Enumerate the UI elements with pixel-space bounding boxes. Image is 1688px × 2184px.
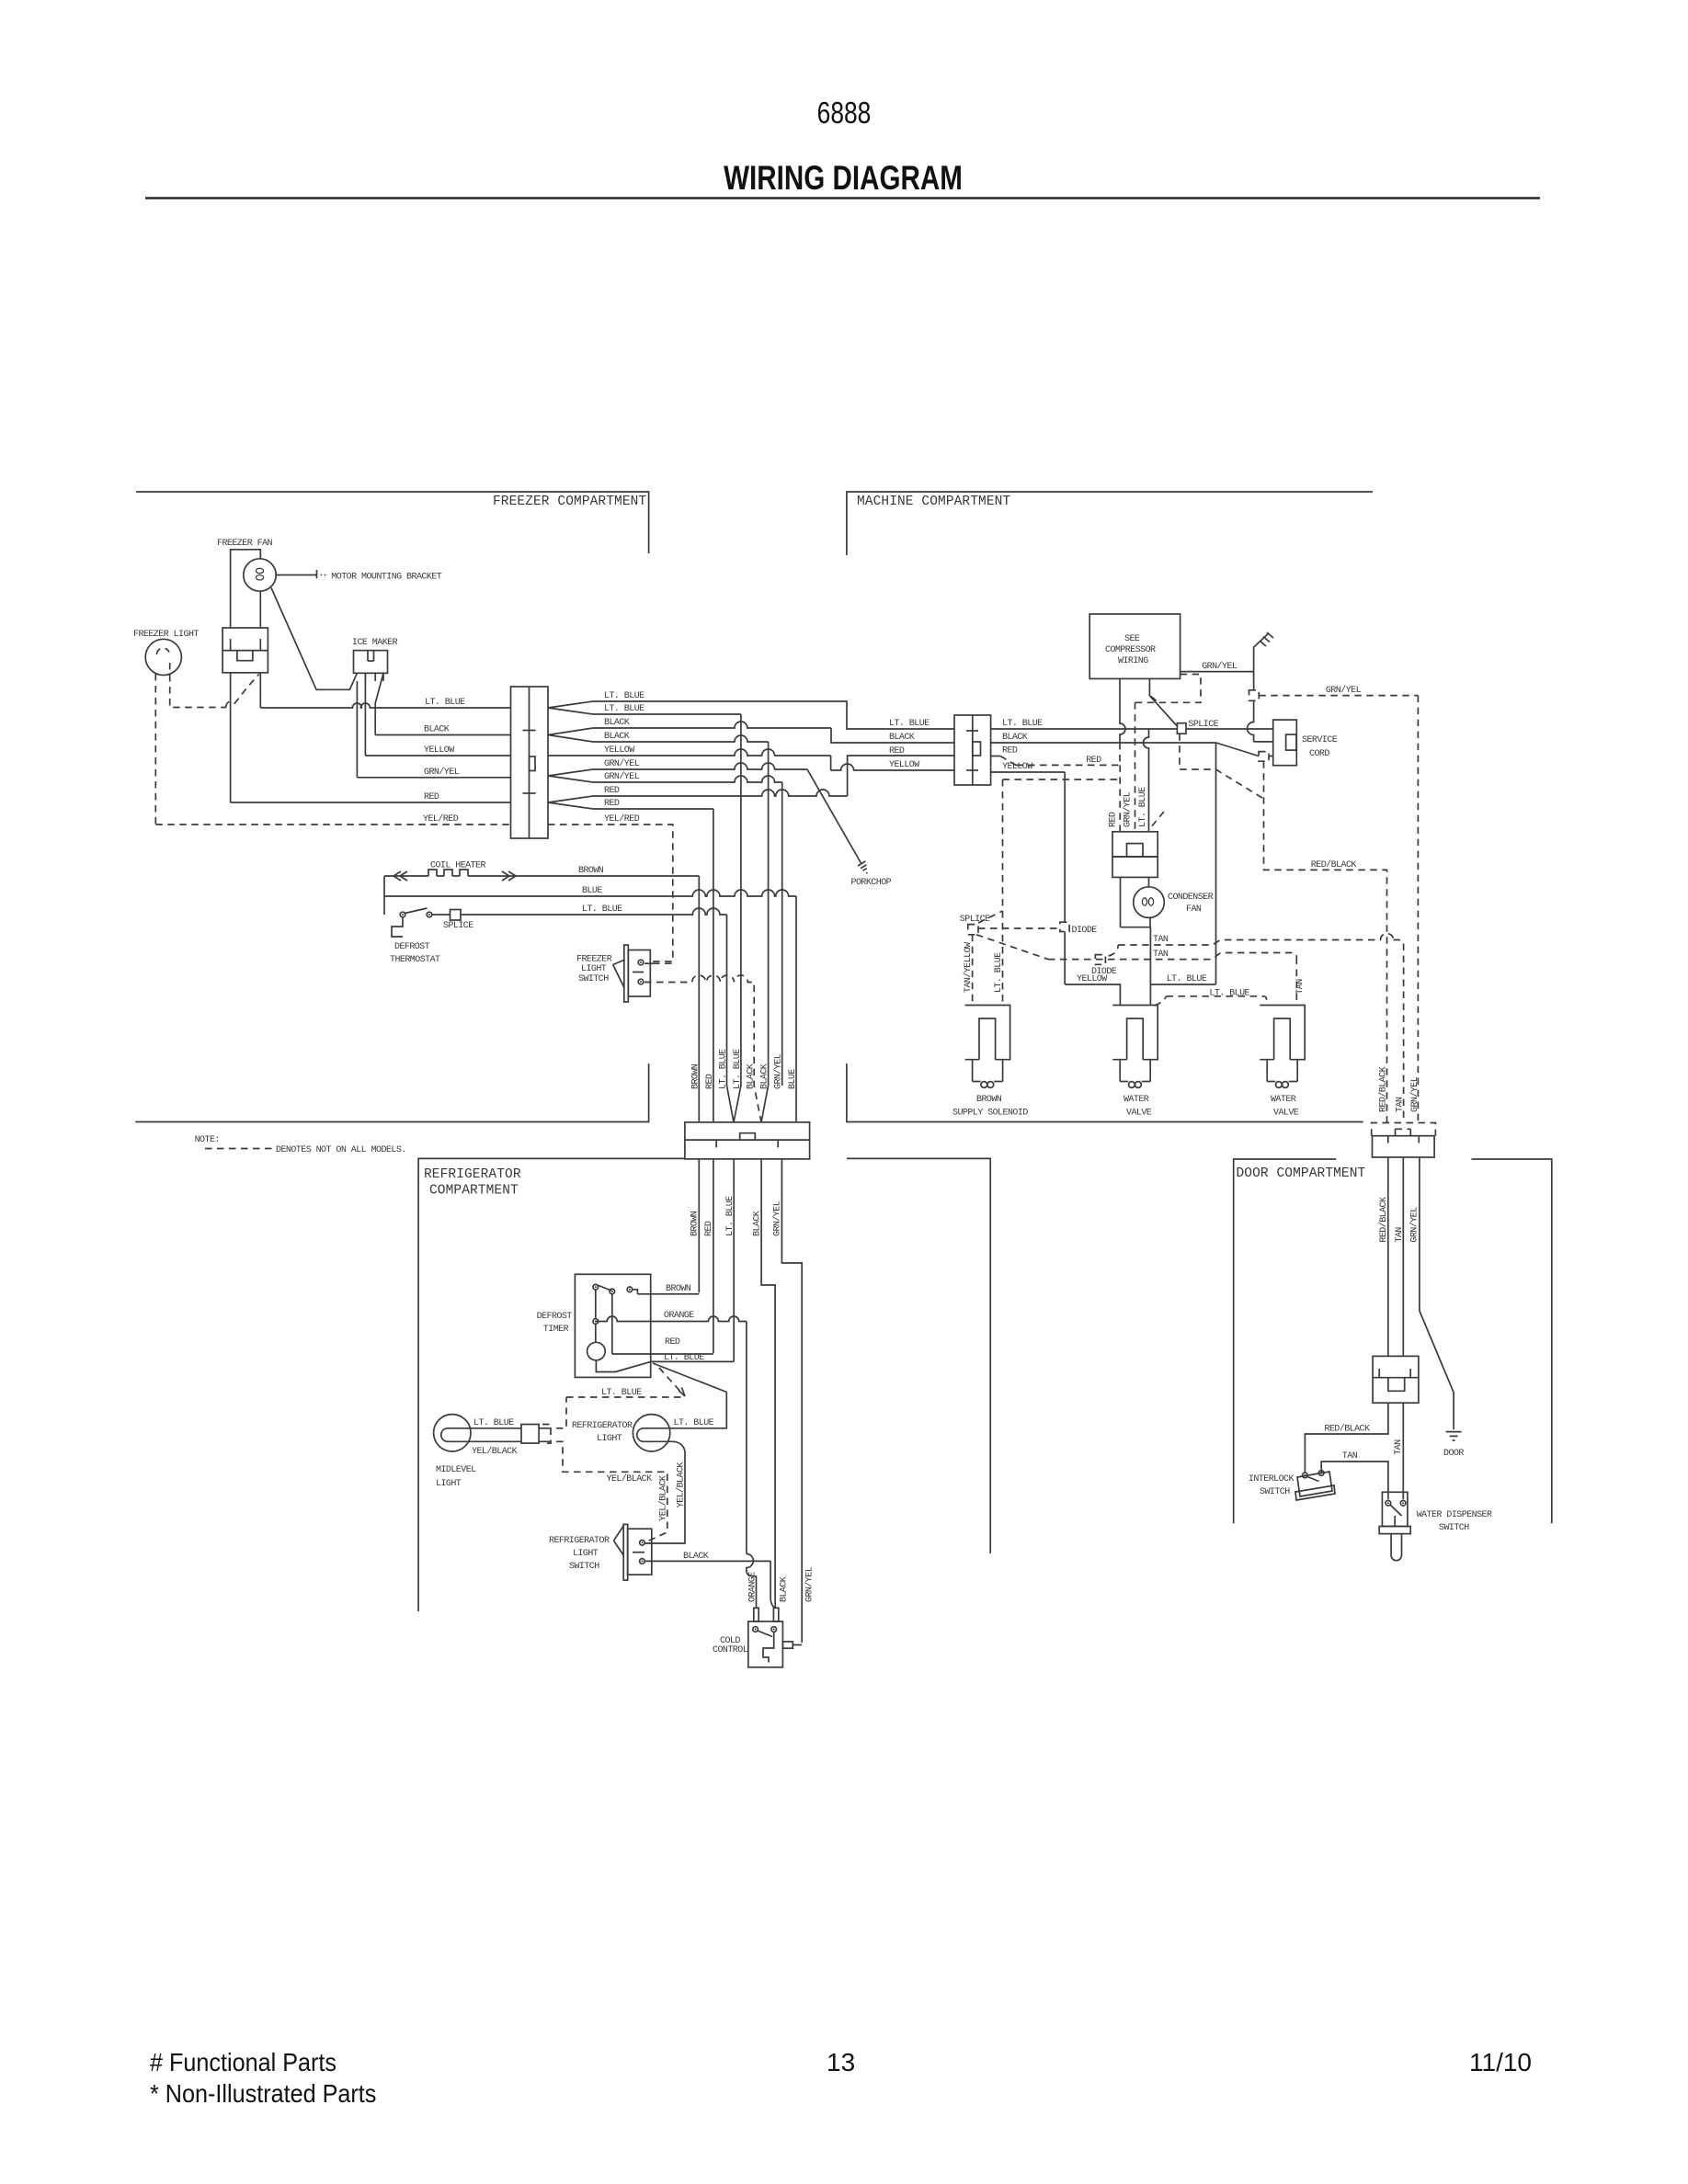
svg-text:TAN: TAN [1295,979,1306,995]
svg-text:TAN/YELLOW: TAN/YELLOW [963,942,974,993]
svg-text:DEFROST: DEFROST [537,1312,573,1322]
svg-text:CORD: CORD [1309,749,1329,759]
svg-text:WATER: WATER [1123,1095,1149,1105]
svg-text:REFRIGERATOR: REFRIGERATOR [549,1536,610,1546]
svg-text:YELLOW: YELLOW [424,745,454,756]
svg-text:DIODE: DIODE [1072,926,1098,936]
svg-text:YELLOW: YELLOW [889,760,919,770]
svg-text:LT. BLUE: LT. BLUE [1138,787,1148,827]
svg-text:GRN/YEL: GRN/YEL [1326,685,1362,696]
svg-text:6888: 6888 [817,97,872,130]
svg-text:RED/BLACK: RED/BLACK [1311,859,1357,870]
svg-text:DEFROST: DEFROST [394,942,430,952]
svg-text:BLACK: BLACK [747,1064,757,1089]
svg-text:LT. BLUE: LT. BLUE [994,952,1004,993]
svg-text:MOTOR MOUNTING BRACKET: MOTOR MOUNTING BRACKET [331,573,441,583]
svg-text:LIGHT: LIGHT [581,964,607,974]
svg-text:TAN: TAN [1395,1227,1405,1243]
svg-text:RED: RED [604,786,620,796]
svg-text:LIGHT: LIGHT [436,1479,462,1489]
svg-text:YEL/RED: YEL/RED [604,813,640,825]
svg-text:RED/BLACK: RED/BLACK [1324,1424,1370,1435]
svg-text:GRN/YEL: GRN/YEL [1202,661,1237,672]
svg-text:RED: RED [604,799,620,809]
svg-text:YEL/BLACK: YEL/BLACK [472,1446,518,1457]
svg-text:BROWN: BROWN [578,866,604,876]
svg-text:TAN: TAN [1394,1439,1404,1455]
svg-text:RED: RED [1086,756,1101,766]
svg-text:GRN/YEL: GRN/YEL [804,1566,815,1602]
svg-text:YELLOW: YELLOW [1077,974,1107,984]
svg-text:SWITCH: SWITCH [578,974,609,984]
svg-text:WIRING DIAGRAM: WIRING DIAGRAM [724,160,963,198]
svg-text:GRN/YEL: GRN/YEL [604,758,640,769]
svg-text:LT. BLUE: LT. BLUE [604,691,644,701]
svg-text:TAN: TAN [1396,1097,1406,1112]
svg-text:LT. BLUE: LT. BLUE [1167,974,1207,984]
svg-text:FREEZER FAN: FREEZER FAN [217,539,273,549]
svg-text:BLACK: BLACK [889,733,915,743]
svg-text:LT. BLUE: LT. BLUE [719,1049,729,1089]
svg-text:FREEZER COMPARTMENT: FREEZER COMPARTMENT [493,495,646,509]
svg-text:SPLICE: SPLICE [443,921,473,931]
svg-text:TIMER: TIMER [543,1325,569,1335]
svg-text:SWITCH: SWITCH [1260,1487,1290,1497]
svg-text:SPLICE: SPLICE [1188,720,1218,730]
svg-text:REFRIGERATOR: REFRIGERATOR [424,1167,521,1182]
svg-text:TAN: TAN [1153,950,1169,960]
svg-text:YEL/BLACK: YEL/BLACK [658,1475,669,1521]
svg-text:RED: RED [424,792,439,802]
svg-text:SEE: SEE [1124,634,1140,644]
svg-text:RED: RED [889,746,905,756]
svg-text:RED/BLACK: RED/BLACK [1378,1066,1389,1112]
svg-text:11/10: 11/10 [1469,2048,1532,2076]
svg-text:GRN/YEL: GRN/YEL [424,767,460,778]
svg-text:LIGHT: LIGHT [573,1549,599,1559]
svg-text:# Functional Parts: # Functional Parts [150,2048,336,2077]
svg-text:VALVE: VALVE [1273,1109,1299,1119]
svg-text:BROWN: BROWN [976,1095,1002,1105]
svg-text:FAN: FAN [1186,904,1202,915]
svg-text:BROWN: BROWN [691,1064,701,1089]
svg-text:RED/BLACK: RED/BLACK [1378,1197,1389,1243]
svg-text:MACHINE COMPARTMENT: MACHINE COMPARTMENT [857,495,1010,509]
svg-text:YEL/BLACK: YEL/BLACK [607,1473,653,1484]
svg-text:GRN/YEL: GRN/YEL [1123,791,1134,827]
svg-text:LT. BLUE: LT. BLUE [889,719,930,729]
svg-text:VALVE: VALVE [1126,1109,1152,1119]
svg-text:BLACK: BLACK [683,1552,709,1562]
svg-text:CONTROL: CONTROL [713,1645,748,1655]
svg-text:BLACK: BLACK [424,725,450,735]
svg-text:CONDENSER: CONDENSER [1168,893,1214,903]
svg-text:LT. BLUE: LT. BLUE [582,904,622,915]
svg-text:DOOR COMPARTMENT: DOOR COMPARTMENT [1237,1166,1366,1181]
svg-text:DENOTES NOT ON ALL MODELS.: DENOTES NOT ON ALL MODELS. [276,1145,406,1155]
svg-text:RED: RED [1002,746,1018,756]
svg-text:LT. BLUE: LT. BLUE [473,1418,514,1428]
svg-text:TAN: TAN [1342,1451,1358,1462]
svg-text:GRN/YEL: GRN/YEL [1409,1076,1420,1112]
svg-text:BROWN: BROWN [666,1284,691,1294]
svg-text:LT. BLUE: LT. BLUE [1002,719,1043,729]
svg-text:FREEZER: FREEZER [576,955,612,965]
svg-text:BLACK: BLACK [779,1576,789,1602]
svg-text:LT. BLUE: LT. BLUE [604,704,644,714]
svg-text:BLACK: BLACK [1002,733,1028,743]
svg-text:YELLOW: YELLOW [604,745,634,756]
svg-text:ORANGE: ORANGE [747,1572,758,1602]
svg-text:REFRIGERATOR: REFRIGERATOR [572,1421,633,1431]
svg-text:RED: RED [1109,812,1119,827]
svg-text:* Non-Illustrated Parts: * Non-Illustrated Parts [150,2079,376,2109]
svg-text:RED: RED [665,1337,680,1348]
svg-text:DOOR: DOOR [1443,1449,1464,1459]
svg-text:FREEZER LIGHT: FREEZER LIGHT [133,630,199,640]
svg-text:GRN/YEL: GRN/YEL [1409,1207,1420,1243]
svg-text:COMPRESSOR: COMPRESSOR [1105,645,1156,655]
svg-text:LT. BLUE: LT. BLUE [601,1388,642,1398]
svg-text:THERMOSTAT: THERMOSTAT [390,955,440,965]
svg-text:YEL/BLACK: YEL/BLACK [676,1462,687,1508]
svg-text:WATER DISPENSER: WATER DISPENSER [1417,1510,1492,1520]
svg-text:YELLOW: YELLOW [1002,762,1032,772]
svg-text:WIRING: WIRING [1118,656,1148,666]
svg-text:LIGHT: LIGHT [597,1434,622,1444]
svg-text:BLACK: BLACK [604,718,630,728]
svg-text:SPLICE: SPLICE [960,915,990,925]
svg-text:SWITCH: SWITCH [569,1562,599,1572]
svg-text:LT. BLUE: LT. BLUE [674,1418,714,1428]
svg-text:LT. BLUE: LT. BLUE [664,1353,704,1363]
svg-text:COIL HEATER: COIL HEATER [430,861,486,871]
svg-text:ICE MAKER: ICE MAKER [352,638,398,648]
svg-text:SUPPLY SOLENOID: SUPPLY SOLENOID [952,1109,1028,1119]
svg-text:MIDLEVEL: MIDLEVEL [436,1465,476,1475]
svg-text:SWITCH: SWITCH [1439,1523,1469,1533]
svg-text:GRN/YEL: GRN/YEL [604,771,640,782]
svg-text:NOTE:: NOTE: [195,1135,220,1145]
svg-text:WATER: WATER [1271,1095,1296,1105]
svg-text:TAN: TAN [1153,935,1169,945]
svg-text:13: 13 [827,2048,855,2076]
svg-text:PORKCHOP: PORKCHOP [851,878,892,888]
svg-text:YEL/RED: YEL/RED [423,813,459,825]
svg-text:SERVICE: SERVICE [1302,735,1338,745]
svg-text:ORANGE: ORANGE [664,1311,694,1321]
svg-text:BLUE: BLUE [788,1069,798,1089]
svg-text:COMPARTMENT: COMPARTMENT [429,1184,519,1199]
svg-text:LT. BLUE: LT. BLUE [1209,989,1249,999]
svg-text:INTERLOCK: INTERLOCK [1249,1474,1295,1484]
svg-text:BLACK: BLACK [604,732,630,742]
svg-text:LT. BLUE: LT. BLUE [425,698,465,708]
svg-text:BLUE: BLUE [582,886,602,896]
